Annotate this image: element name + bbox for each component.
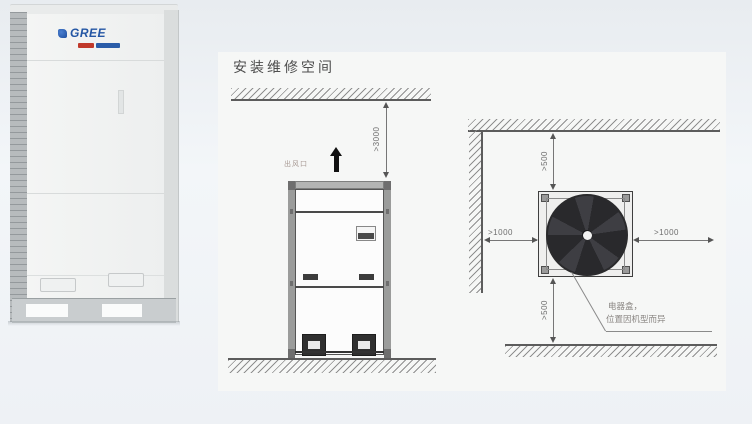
gree-logo-mark-icon bbox=[58, 29, 67, 38]
arrow-left-icon bbox=[633, 237, 639, 243]
post-bolt bbox=[386, 281, 389, 286]
callout-underline bbox=[606, 331, 712, 332]
brand-badge-blue bbox=[96, 43, 120, 48]
post-bracket bbox=[288, 349, 295, 358]
bottom-wall-hatch bbox=[505, 346, 717, 357]
unit-shadow bbox=[8, 321, 180, 326]
post-bolt bbox=[386, 209, 389, 214]
base-fork-slot bbox=[26, 304, 68, 317]
arrow-up-icon bbox=[550, 278, 556, 284]
unit-divider-top bbox=[295, 211, 384, 213]
post-bolt bbox=[290, 209, 293, 214]
fan-hub bbox=[583, 231, 592, 240]
arrow-right-icon bbox=[708, 237, 714, 243]
panel-seam bbox=[27, 193, 164, 194]
dim-label-left-clearance: >1000 bbox=[488, 228, 513, 238]
ceiling-line bbox=[231, 99, 431, 101]
unit-divider-mid bbox=[295, 286, 384, 288]
foot-slot bbox=[358, 341, 370, 349]
unit-left-post bbox=[288, 181, 295, 358]
air-outlet-arrow-icon bbox=[330, 147, 342, 156]
page-title: 安装维修空间 bbox=[233, 57, 335, 77]
unit-label-sticker-dark bbox=[358, 233, 374, 239]
left-wall-line bbox=[481, 130, 483, 293]
left-wall-hatch bbox=[469, 130, 481, 293]
foot-slot bbox=[308, 341, 320, 349]
dim-label-bottom-clearance: >500 bbox=[540, 296, 550, 324]
dim-label-ceiling-clearance: >3000 bbox=[372, 122, 382, 156]
dim-line-bottom-clearance bbox=[553, 280, 554, 341]
unit-right-post bbox=[164, 10, 179, 322]
ceiling-hatch bbox=[231, 88, 431, 99]
dim-line-top-clearance bbox=[553, 135, 554, 188]
top-wall-hatch bbox=[468, 119, 720, 130]
unit-handle bbox=[303, 274, 318, 280]
unit-top-rail bbox=[295, 181, 384, 189]
dim-label-right-clearance: >1000 bbox=[654, 228, 679, 238]
dim-line-left-clearance bbox=[486, 240, 537, 241]
top-wall-line bbox=[468, 130, 720, 132]
gree-logo-text: GREE bbox=[70, 26, 106, 40]
ground-hatch bbox=[228, 360, 436, 373]
unit-base-line bbox=[295, 351, 384, 353]
unit-top-view bbox=[538, 191, 633, 277]
post-bracket bbox=[288, 181, 295, 190]
brand-badge-red bbox=[78, 43, 94, 48]
unit-right-post bbox=[384, 181, 391, 358]
callout-text-line2: 位置因机型而异 bbox=[606, 314, 666, 325]
gree-logo: GREE bbox=[58, 26, 106, 40]
air-outlet-label: 出风口 bbox=[284, 159, 308, 169]
post-bracket bbox=[384, 349, 391, 358]
base-fork-slot bbox=[102, 304, 142, 317]
arrow-down-icon bbox=[550, 337, 556, 343]
dim-line-ceiling-clearance bbox=[386, 104, 387, 176]
lower-handle bbox=[40, 278, 76, 292]
figure-installation-clearance: GREE 安装维修空间 >3000 出风口 bbox=[0, 0, 752, 424]
lower-handle bbox=[108, 273, 144, 287]
unit-handle bbox=[359, 274, 374, 280]
arrow-down-icon bbox=[550, 184, 556, 190]
outdoor-unit-photo: GREE bbox=[0, 0, 200, 330]
service-handle-slot bbox=[118, 90, 124, 114]
arrow-up-icon bbox=[550, 133, 556, 139]
callout-text-line1: 电器盒， bbox=[608, 301, 642, 312]
dim-line-right-clearance bbox=[635, 240, 712, 241]
post-bracket bbox=[384, 181, 391, 190]
unit-body bbox=[295, 189, 384, 355]
panel-seam bbox=[27, 60, 164, 61]
unit-side-louvers bbox=[10, 12, 27, 322]
arrow-down-icon bbox=[383, 172, 389, 178]
arrow-up-icon bbox=[383, 102, 389, 108]
dim-label-top-clearance: >500 bbox=[540, 147, 550, 175]
post-bolt bbox=[290, 281, 293, 286]
fan-icon bbox=[546, 194, 628, 276]
arrow-right-icon bbox=[532, 237, 538, 243]
air-outlet-arrow-stem bbox=[334, 156, 339, 172]
